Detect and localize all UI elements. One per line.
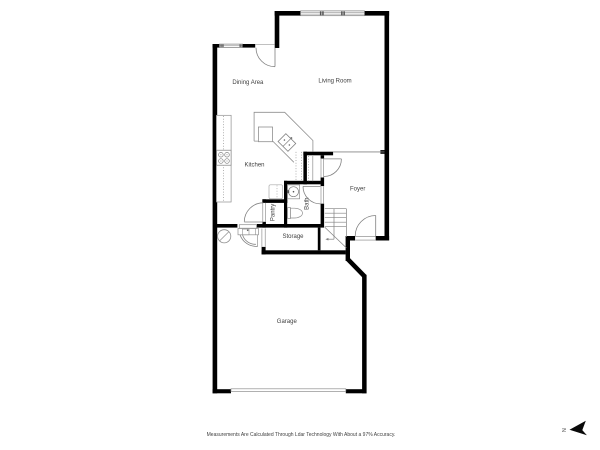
svg-text:Storage: Storage: [282, 234, 304, 240]
svg-text:Pantry: Pantry: [270, 204, 276, 221]
svg-text:Dining Area: Dining Area: [232, 80, 264, 86]
svg-text:Living Room: Living Room: [318, 79, 351, 85]
svg-text:Garage: Garage: [277, 319, 298, 325]
svg-text:Bath: Bath: [304, 198, 310, 210]
svg-text:N: N: [562, 428, 568, 432]
svg-text:Foyer: Foyer: [350, 186, 365, 192]
svg-text:Measurements Are Calculated Th: Measurements Are Calculated Through Ldar…: [207, 432, 396, 438]
svg-text:Kitchen: Kitchen: [244, 162, 264, 168]
